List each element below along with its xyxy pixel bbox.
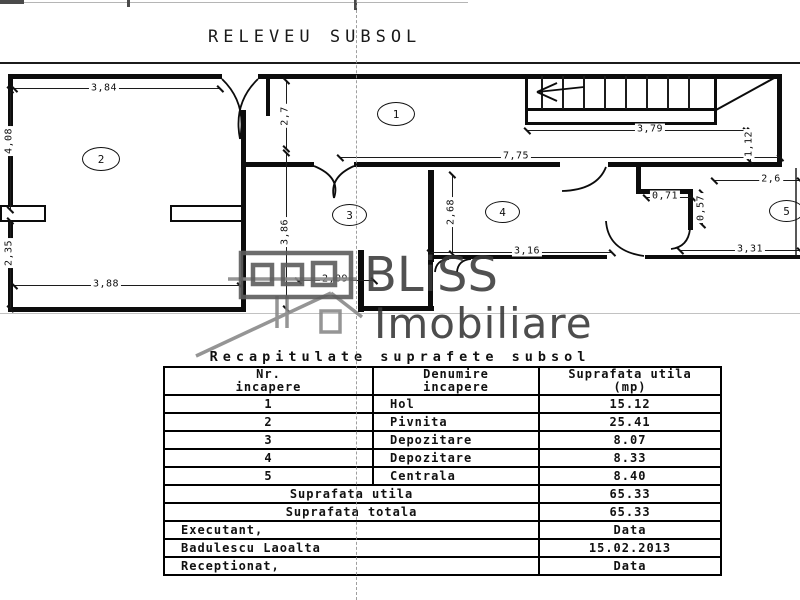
cell-room-number: 5 [164,467,373,485]
cell-room-number: 2 [164,413,373,431]
wall-segment [525,76,528,125]
cell-room-name: Depozitare [373,431,539,449]
header-suprafata-utila: Suprafata utila (mp) [539,367,721,395]
wall-segment [8,307,246,312]
cell-room-number: 4 [164,449,373,467]
dimension-label: 3,16 [512,246,542,257]
dimension-label: 0,57 [696,193,707,223]
wall-segment [608,162,782,167]
table-row: 5Centrala8.40 [164,467,721,485]
dimension-label: 4,08 [4,126,15,156]
dimension-label: 7,75 [501,151,531,162]
wall-pier [170,205,243,222]
scanned-floor-plan-sheet: RELEVEU SUBSOL 3,843,882,097,753,793,160… [0,0,800,600]
table-summary-row: Receptionat,Data [164,557,721,575]
wall-segment [354,162,560,167]
wall-segment [525,122,717,125]
surface-recap-table: Nr. incapere Denumire incapere Suprafata… [163,366,722,576]
dimension-label: 2,6 [759,174,783,185]
wall-segment [258,74,782,79]
stair-tread-line [688,76,690,109]
dimension-label: 3,84 [89,83,119,94]
summary-value: 15.02.2013 [539,539,721,557]
dimension-label: 3,86 [280,217,291,247]
watermark-brand-line2: Imobiliare [374,303,593,345]
room-number: 4 [485,201,520,223]
table-summary-row: Badulescu Laoalta15.02.2013 [164,539,721,557]
table-summary-row: Suprafata utila65.33 [164,485,721,503]
summary-value: Data [539,557,721,575]
room-number: 1 [377,102,415,126]
table-row: 4Depozitare8.33 [164,449,721,467]
room-number: 5 [769,200,800,222]
wall-segment [8,74,222,79]
wall-segment [645,255,800,259]
stair-tread-line [583,76,585,109]
dimension-label: 2,68 [446,197,457,227]
stair-tread-line [562,76,564,109]
cell-room-area: 15.12 [539,395,721,413]
table-title: Recapitulate suprafete subsol [170,349,630,365]
stair-tread-line [625,76,627,109]
summary-value: 65.33 [539,485,721,503]
dimension-label: 2,35 [4,238,15,268]
cell-room-area: 8.07 [539,431,721,449]
cell-room-area: 8.33 [539,449,721,467]
dimension-label: 0,71 [650,191,680,202]
dimension-line [340,157,780,158]
summary-label: Receptionat, [164,557,539,575]
cell-room-name: Hol [373,395,539,413]
table-row: 1Hol15.12 [164,395,721,413]
summary-label: Badulescu Laoalta [164,539,539,557]
stair-tread-line [541,76,543,109]
dimension-label: 3,79 [635,124,665,135]
header-nr-incapere: Nr. incapere [164,367,373,395]
dimension-label: 2,09 [320,274,350,285]
summary-value: Data [539,521,721,539]
scan-fold-line-vertical [356,0,357,600]
table-header-row: Nr. incapere Denumire incapere Suprafata… [164,367,721,395]
stair-tread-line [667,76,669,109]
dimension-label: 3,31 [735,244,765,255]
table-summary-row: Executant,Data [164,521,721,539]
wall-segment [244,162,314,167]
table-row: 2Pivnita25.41 [164,413,721,431]
cell-room-name: Centrala [373,467,539,485]
table-row: 3Depozitare8.07 [164,431,721,449]
dimension-label: 2,7 [280,104,291,128]
dimension-line [714,180,800,181]
watermark-brand: BLiSS [364,251,498,299]
header-line: incapere [376,381,536,394]
dimension-label: 1,12 [744,129,755,159]
stair-tread-line [604,76,606,109]
wall-segment [266,74,270,116]
room-number: 3 [332,204,367,226]
cell-room-number: 3 [164,431,373,449]
cell-room-number: 1 [164,395,373,413]
table-summary-row: Suprafata totala65.33 [164,503,721,521]
wall-segment [714,76,717,125]
summary-value: 65.33 [539,503,721,521]
summary-label: Executant, [164,521,539,539]
cell-room-area: 8.40 [539,467,721,485]
summary-label: Suprafata totala [164,503,539,521]
cell-room-area: 25.41 [539,413,721,431]
dimension-label: 3,88 [91,279,121,290]
header-line: (mp) [542,381,718,394]
summary-label: Suprafata utila [164,485,539,503]
cell-room-name: Pivnita [373,413,539,431]
header-line: incapere [167,381,370,394]
stair-tread-line [646,76,648,109]
header-denumire-incapere: Denumire incapere [373,367,539,395]
dimension-line [14,285,240,286]
room-number: 2 [82,147,120,171]
cell-room-name: Depozitare [373,449,539,467]
